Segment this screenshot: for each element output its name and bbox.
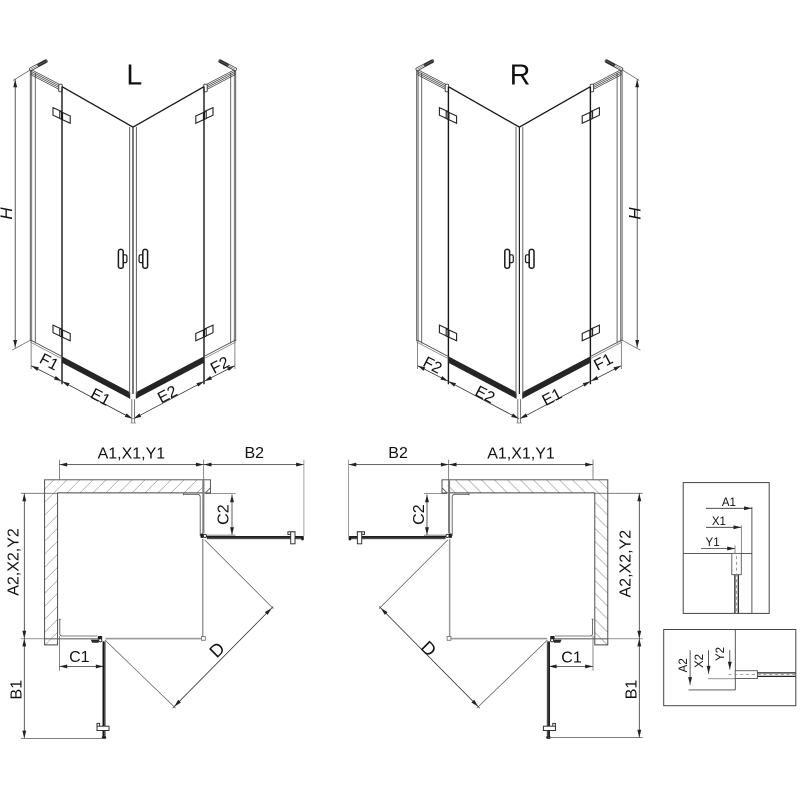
svg-text:C1: C1 <box>561 649 582 666</box>
svg-text:C2: C2 <box>216 504 233 525</box>
svg-text:L: L <box>126 59 142 91</box>
svg-text:A1,X1,Y1: A1,X1,Y1 <box>487 446 555 463</box>
svg-text:D: D <box>205 638 228 661</box>
svg-text:A2: A2 <box>678 658 690 672</box>
svg-text:F2: F2 <box>420 354 445 378</box>
svg-text:A1: A1 <box>722 497 736 509</box>
svg-text:Y2: Y2 <box>715 647 727 661</box>
svg-text:F2: F2 <box>208 354 233 378</box>
svg-text:Y1: Y1 <box>706 537 720 549</box>
svg-text:A2,X2,Y2: A2,X2,Y2 <box>5 528 22 596</box>
svg-text:H: H <box>626 207 645 220</box>
svg-text:B1: B1 <box>624 680 641 700</box>
svg-text:X1: X1 <box>712 516 726 528</box>
svg-text:C2: C2 <box>411 504 428 525</box>
svg-text:B1: B1 <box>8 680 25 700</box>
svg-text:C1: C1 <box>69 649 90 666</box>
svg-text:X2: X2 <box>694 654 706 668</box>
svg-text:B2: B2 <box>245 445 265 462</box>
svg-text:E2: E2 <box>472 383 497 407</box>
svg-text:H: H <box>0 207 16 220</box>
svg-text:E2: E2 <box>155 383 180 407</box>
svg-text:A1,X1,Y1: A1,X1,Y1 <box>98 446 166 463</box>
svg-text:A2,X2,Y2: A2,X2,Y2 <box>617 530 634 598</box>
svg-text:R: R <box>510 59 531 91</box>
svg-text:D: D <box>417 637 440 660</box>
svg-text:B2: B2 <box>388 445 408 462</box>
